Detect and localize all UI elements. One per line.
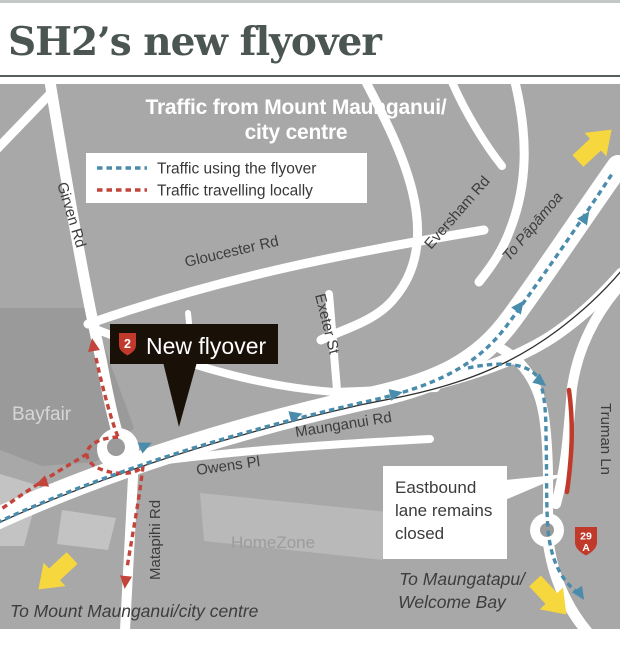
map-header-line1: Traffic from Mount Maunganui/ (145, 96, 446, 119)
legend-local-label: Traffic travelling locally (157, 182, 313, 199)
legend-flyover-label: Traffic using the flyover (157, 160, 316, 177)
eastbound-label-line1: Eastbound (395, 478, 476, 497)
map-header-line2: city centre (245, 121, 348, 144)
truman-label: Truman Ln (597, 403, 614, 475)
bayfair-roundabout-island (107, 438, 125, 456)
top-rule (0, 0, 620, 3)
matapihi-label: Matapihi Rd (147, 500, 164, 580)
homezone-label: HomeZone (231, 533, 315, 552)
eastbound-label-line2: lane remains (395, 501, 492, 520)
maungatapu-label-line2: Welcome Bay (398, 592, 507, 612)
new-flyover-label: New flyover (146, 333, 266, 359)
mount-maunganui-label: To Mount Maunganui/city centre (10, 601, 259, 621)
title-divider (0, 75, 620, 77)
map-graphic: Bayfair HomeZone Girven Rd Gloucester Rd… (0, 84, 620, 629)
maungatapu-label-line1: To Maungatapu/ (399, 569, 527, 589)
legend: Traffic using the flyover Traffic travel… (86, 153, 367, 203)
eastbound-label-line3: closed (395, 524, 444, 543)
page-title: SH2’s new flyover (8, 21, 620, 64)
sh29a-shield-top: 29 (580, 530, 592, 542)
bayfair-label: Bayfair (12, 404, 72, 425)
sh2-shield-number: 2 (124, 337, 131, 351)
sh29a-shield-bottom: A (582, 542, 590, 554)
